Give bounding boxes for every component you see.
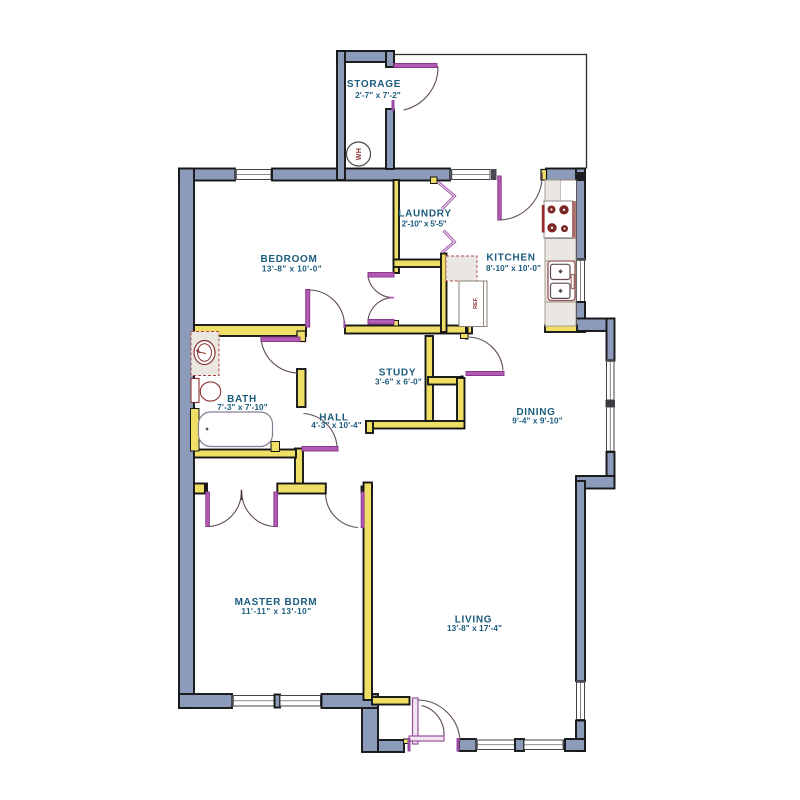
svg-text:8'-10" x 10'-0": 8'-10" x 10'-0" — [486, 264, 541, 273]
svg-text:13'-8" x 17'-4": 13'-8" x 17'-4" — [447, 624, 502, 633]
svg-text:7'-3" x 7'-10": 7'-3" x 7'-10" — [217, 403, 267, 412]
svg-text:9'-4" x 9'-10": 9'-4" x 9'-10" — [512, 417, 562, 426]
svg-text:4'-3" x 10'-4": 4'-3" x 10'-4" — [311, 421, 361, 430]
svg-text:3'-6" x 6'-0": 3'-6" x 6'-0" — [375, 378, 422, 387]
svg-text:STORAGE: STORAGE — [347, 79, 401, 90]
svg-text:2'-10" x 5'-5": 2'-10" x 5'-5" — [402, 220, 447, 229]
svg-text:11'-11" x 13'-10": 11'-11" x 13'-10" — [241, 607, 311, 616]
svg-text:2'-7" x 7'-2": 2'-7" x 7'-2" — [355, 91, 401, 100]
svg-text:13'-8" x 10'-0": 13'-8" x 10'-0" — [262, 265, 322, 274]
svg-text:LAUNDRY: LAUNDRY — [398, 209, 451, 220]
svg-text:KITCHEN: KITCHEN — [486, 253, 535, 264]
svg-text:BEDROOM: BEDROOM — [260, 254, 317, 265]
svg-text:WH: WH — [356, 148, 363, 160]
svg-text:REF.: REF. — [473, 297, 479, 309]
